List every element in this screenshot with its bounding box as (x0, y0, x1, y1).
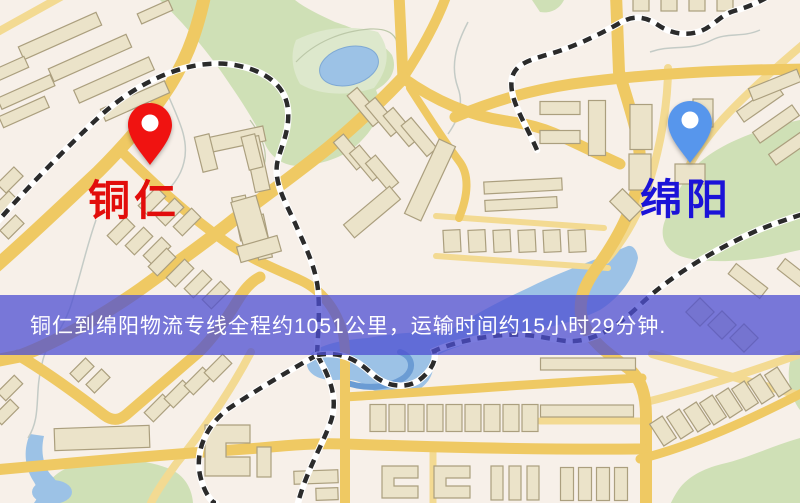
marker-tongren (127, 102, 173, 166)
map-image: 铜仁到绵阳物流专线全程约1051公里，运输时间约15小时29分钟. 铜仁 绵阳 (0, 0, 800, 503)
red-location-pin-icon (127, 102, 173, 166)
route-info-banner: 铜仁到绵阳物流专线全程约1051公里，运输时间约15小时29分钟. (0, 295, 800, 355)
marker-mianyang (667, 100, 713, 164)
blue-location-pin-icon (667, 100, 713, 164)
label-mianyang: 绵阳 (640, 179, 732, 221)
label-tongren: 铜仁 (88, 180, 180, 222)
route-info-text: 铜仁到绵阳物流专线全程约1051公里，运输时间约15小时29分钟. (30, 310, 666, 340)
map-background (0, 0, 800, 503)
